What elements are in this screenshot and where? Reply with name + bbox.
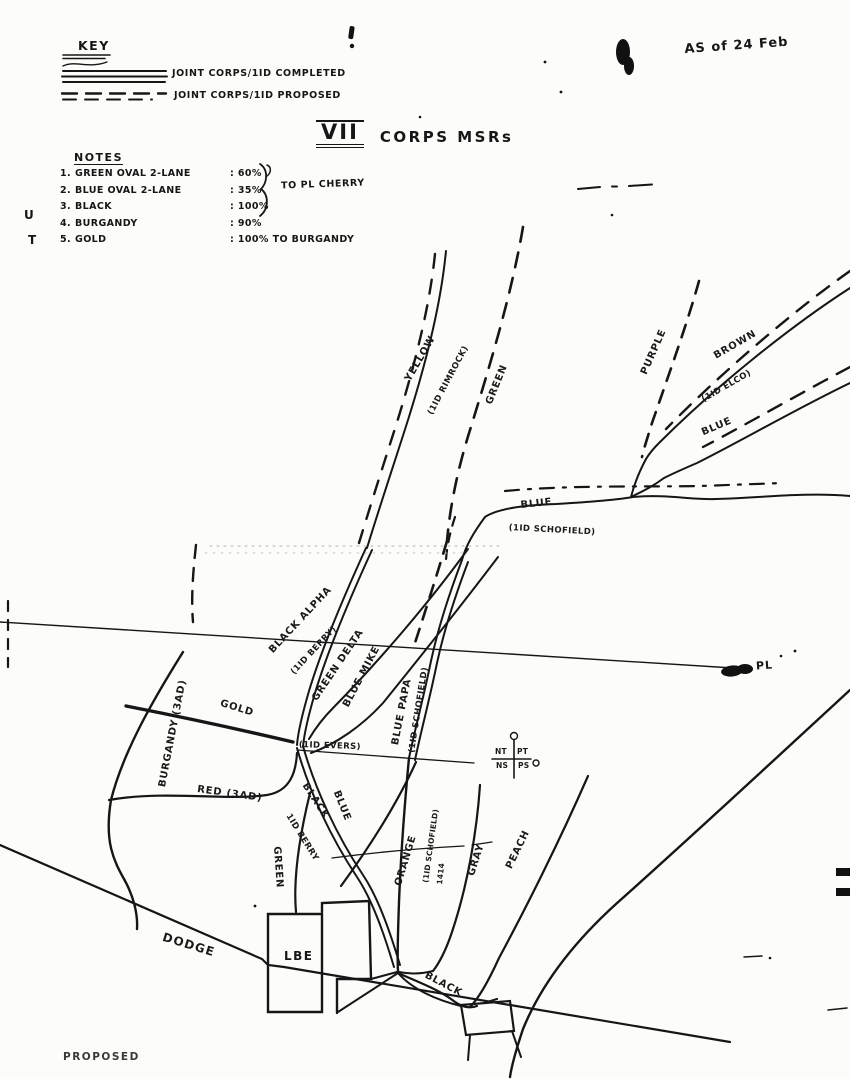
phase-line-label: PL [756, 658, 774, 672]
stray-mark [348, 26, 355, 40]
note-row: 3. BLACK : 100% [60, 201, 350, 218]
speck [254, 905, 257, 908]
route-blue-papa-b [415, 562, 468, 760]
boundary-symbol-circle-right [533, 760, 539, 766]
route-yellow-dashes [359, 254, 435, 543]
note-number: 1. [60, 168, 71, 179]
speck [794, 650, 797, 653]
key-proposed-label: JOINT CORPS/1ID PROPOSED [174, 90, 341, 101]
route-burgandy [109, 652, 183, 929]
lbe-label: LBE [284, 949, 314, 963]
route-blue-topright-solid [664, 383, 850, 478]
speck [780, 655, 783, 658]
evers-boundary-line [297, 750, 474, 763]
footer-partial-text: PROPOSED [63, 1051, 140, 1063]
ink-blot-top-2 [624, 57, 634, 75]
bottom-right-dash-1 [744, 956, 762, 957]
pl-scribble-2 [737, 664, 753, 674]
note-value: : 90% [230, 218, 262, 229]
note-number: 3. [60, 201, 71, 212]
note-name: BLUE OVAL 2-LANE [75, 185, 182, 196]
note-value: : 60% [230, 168, 262, 179]
title-text: CORPS MSRs [380, 128, 514, 148]
note-name: BURGANDY [75, 218, 138, 229]
key-heading-underline [63, 55, 110, 59]
lbe-box-main [268, 914, 322, 1012]
small-box-legs [468, 1031, 521, 1060]
route-gold [126, 706, 293, 742]
speck [769, 957, 772, 960]
stray-mark-dot [350, 44, 354, 48]
route-blue-topright-dashes [703, 367, 850, 447]
boundary-label-nt: NT [495, 747, 507, 756]
key-heading: KEY [78, 38, 110, 53]
scanned-map-page: KEY JOINT CORPS/1ID COMPLETED JOINT CORP… [0, 0, 850, 1079]
bottom-right-dash-2 [828, 1008, 847, 1010]
note-row: 4. BURGANDY : 90% [60, 218, 350, 235]
right-edge-tick-1 [836, 868, 850, 876]
note-value: : 35% [230, 185, 262, 196]
notes-block: NOTES 1. GREEN OVAL 2-LANE : 60% 2. BLUE… [60, 146, 350, 251]
big-right-curve [510, 690, 850, 1077]
speck [544, 61, 547, 64]
boundary-symbol-circle-top [511, 733, 518, 740]
note-number: 2. [60, 185, 71, 196]
note-name: GREEN OVAL 2-LANE [75, 168, 191, 179]
note-number: 5. [60, 234, 71, 245]
note-number: 4. [60, 218, 71, 229]
speck [419, 116, 422, 119]
title-roman-numeral: VII [316, 120, 364, 148]
margin-letter-t: T [28, 233, 36, 247]
note-value: : 100% TO BURGANDY [230, 234, 354, 245]
speck [611, 214, 614, 217]
note-value: : 100% [230, 201, 269, 212]
boundary-symbol-cross [492, 740, 531, 778]
stray-dash-marks [578, 185, 652, 190]
boundary-label-ns: NS [496, 761, 508, 770]
note-name: BLACK [75, 201, 112, 212]
right-edge-tick-2 [836, 888, 850, 896]
route-green-top-dashed [447, 227, 523, 541]
route-brown-dashes [666, 271, 850, 429]
route-label-evers: (1ID EVERS) [299, 740, 361, 752]
boundary-label-ps: PS [518, 761, 529, 770]
page-title: VII CORPS MSRs [316, 120, 513, 148]
speck [560, 91, 563, 94]
note-row: 5. GOLD : 100% TO BURGANDY [60, 234, 350, 251]
route-dodge [0, 845, 730, 1042]
key-completed-label: JOINT CORPS/1ID COMPLETED [172, 68, 346, 79]
notes-heading: NOTES [74, 151, 123, 165]
key-squiggle [63, 62, 107, 66]
route-peach [470, 776, 588, 1007]
left-proposed-dashes [192, 545, 196, 622]
key-completed-sample [62, 71, 167, 82]
note-name: GOLD [75, 234, 106, 245]
margin-letter-u: U [24, 208, 34, 222]
boundary-label-pt: PT [517, 747, 528, 756]
